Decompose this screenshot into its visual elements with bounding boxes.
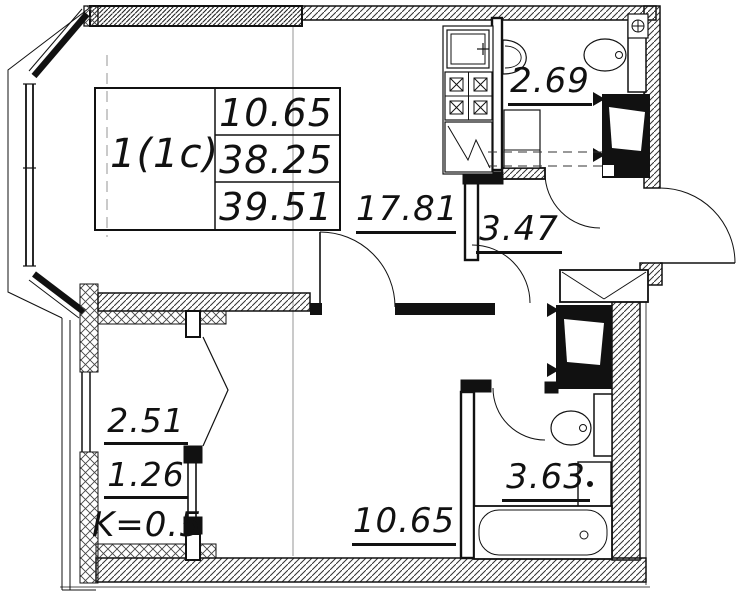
kitchen-unit [443, 26, 493, 174]
entrance-door-arc [660, 188, 735, 263]
table-apartment-area: 38.25 [216, 141, 336, 179]
bathroom-door-arc [493, 388, 545, 440]
area-kitchen-living-room: 17.81 [356, 192, 456, 234]
area-bathroom: 3.63 [502, 460, 590, 502]
area-balcony-counted: 1.26 [104, 458, 188, 499]
vent-grille-icon [628, 14, 648, 38]
stove-icon [445, 72, 492, 120]
apartment-type-label: 1(1c) [110, 134, 214, 174]
table-living-area: 10.65 [216, 94, 336, 132]
living-room-door-arc [320, 232, 395, 307]
refrigerator-icon [445, 122, 492, 172]
bathroom-toilet-icon [551, 394, 612, 456]
vent-shaft-top [593, 92, 650, 178]
balcony-coefficient-label: K=0.5 [92, 508, 200, 542]
vent-shaft-middle [547, 303, 612, 389]
area-wc: 2.69 [508, 64, 592, 106]
washer-icon [504, 110, 540, 168]
area-hallway: 3.47 [476, 212, 562, 254]
top-wall [90, 6, 656, 26]
area-balcony: 2.51 [104, 404, 188, 445]
floor-plan: 1(1c) 10.65 38.25 39.51 17.81 2.69 3.47 … [0, 0, 740, 600]
balcony-door-leaf [203, 337, 228, 446]
bathtub-icon [474, 506, 612, 559]
entry-closet [560, 270, 648, 302]
mid-wall [98, 293, 495, 324]
bay-window [8, 6, 98, 318]
area-bedroom: 10.65 [352, 504, 456, 546]
kitchen-sink-icon [447, 30, 489, 68]
table-total-area: 39.51 [216, 188, 336, 226]
